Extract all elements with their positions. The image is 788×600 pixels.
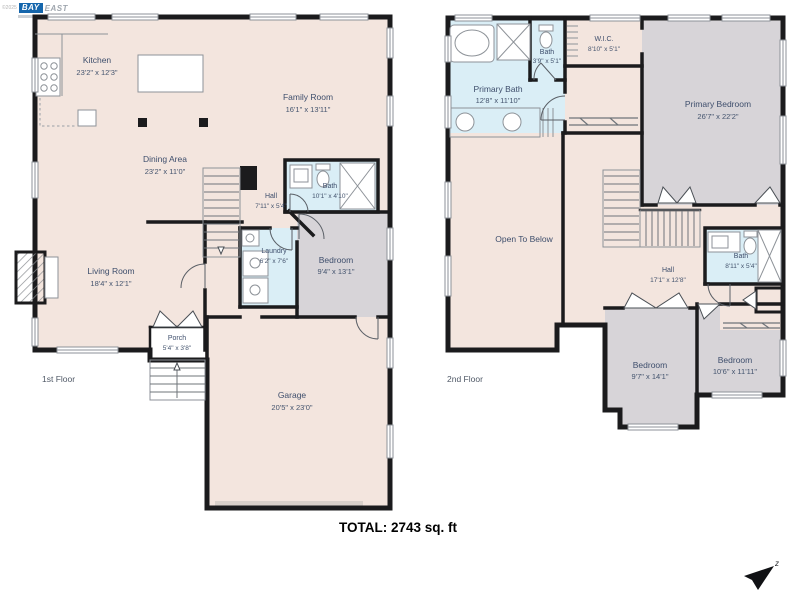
dims-bedroom-right: 10'6" x 11'11" xyxy=(713,367,758,376)
toilet-small xyxy=(540,32,552,48)
dims-dining-area: 23'2" x 11'0" xyxy=(145,167,186,176)
first-floor-plan: Kitchen 23'2" x 12'3" Family Room 16'1" … xyxy=(16,14,393,508)
dims-bath-small: 3'9" x 5'1" xyxy=(533,58,562,65)
column-post-left xyxy=(138,118,147,127)
column-post-right xyxy=(199,118,208,127)
label-hall-1f: Hall xyxy=(265,193,278,200)
small-bath-fixtures xyxy=(539,25,553,48)
vanity-bath2 xyxy=(708,232,740,252)
shower-bath2 xyxy=(758,230,781,282)
compass-north-arrow: z xyxy=(744,559,779,590)
kitchen-sink-cabinet xyxy=(78,110,96,126)
label-dining-area: Dining Area xyxy=(143,154,187,164)
total-sqft-label: TOTAL: 2743 sq. ft xyxy=(298,520,498,535)
porch-floor xyxy=(150,327,205,360)
dims-laundry: 6'2" x 7'6" xyxy=(260,258,289,265)
dims-kitchen: 23'2" x 12'3" xyxy=(76,68,117,77)
label-living-room: Living Room xyxy=(87,266,134,276)
label-laundry: Laundry xyxy=(261,248,287,255)
dims-bedroom-left: 9'7" x 14'1" xyxy=(632,372,669,381)
sink-vanity xyxy=(290,165,312,188)
label-porch: Porch xyxy=(168,335,186,342)
dims-hall-2f: 17'1" x 12'8" xyxy=(650,277,686,284)
dims-wic: 8'10" x 5'1" xyxy=(588,46,621,53)
label-bedroom-1f: Bedroom xyxy=(319,255,354,265)
floorplan-page: ©2025 BAY EAST xyxy=(0,0,788,600)
dims-garage: 20'5" x 23'0" xyxy=(271,403,312,412)
bedroom-right-closet-floor xyxy=(720,304,783,330)
dims-hall-1f: 7'11" x 5'4" xyxy=(255,203,287,210)
kitchen-island xyxy=(138,55,203,92)
label-wic: W.I.C. xyxy=(594,36,613,43)
label-bedroom-left: Bedroom xyxy=(633,360,668,370)
dims-bedroom-1f: 9'4" x 13'1" xyxy=(318,267,355,276)
dims-primary-bedroom: 26'7" x 22'2" xyxy=(697,112,738,121)
label-primary-bath: Primary Bath xyxy=(473,84,522,94)
label-garage: Garage xyxy=(278,390,307,400)
dims-porch: 5'4" x 3'8" xyxy=(163,345,192,352)
dims-primary-bath: 12'8" x 11'10" xyxy=(476,96,521,105)
second-floor-plan: Primary Bath 12'8" x 11'10" Bath 3'9" x … xyxy=(445,15,786,430)
label-bath-2f: Bath xyxy=(734,253,749,260)
sink-right xyxy=(503,113,521,131)
label-open-to-below: Open To Below xyxy=(495,234,553,244)
dims-living-room: 18'4" x 12'1" xyxy=(90,279,131,288)
shower xyxy=(340,163,375,209)
compass-letter: z xyxy=(774,559,779,568)
label-hall-2f: Hall xyxy=(662,267,675,274)
fireplace xyxy=(16,252,58,303)
shower-primary xyxy=(497,24,530,60)
label-bath-1f: Bath xyxy=(323,183,338,190)
label-family-room: Family Room xyxy=(283,92,333,102)
label-kitchen: Kitchen xyxy=(83,55,112,65)
label-bedroom-right: Bedroom xyxy=(718,355,753,365)
dims-bath-1f: 10'1" x 4'10" xyxy=(312,193,348,200)
second-floor-label: 2nd Floor xyxy=(447,374,483,384)
dims-family-room: 16'1" x 13'11" xyxy=(286,105,331,114)
toilet-tank xyxy=(316,164,330,170)
toilet-tank-small xyxy=(539,25,553,31)
toilet-tank-bath2 xyxy=(744,231,757,237)
first-floor-label: 1st Floor xyxy=(42,374,75,384)
label-primary-bedroom: Primary Bedroom xyxy=(685,99,751,109)
label-bath-small: Bath xyxy=(540,49,555,56)
floor-plan-svg: Kitchen 23'2" x 12'3" Family Room 16'1" … xyxy=(0,0,788,600)
porch-steps xyxy=(150,360,205,400)
toilet-bath2 xyxy=(744,238,756,254)
wall-stair-chunk xyxy=(240,166,257,190)
sink-left xyxy=(456,113,474,131)
dims-bath-2f: 8'11" x 5'4" xyxy=(725,263,757,270)
